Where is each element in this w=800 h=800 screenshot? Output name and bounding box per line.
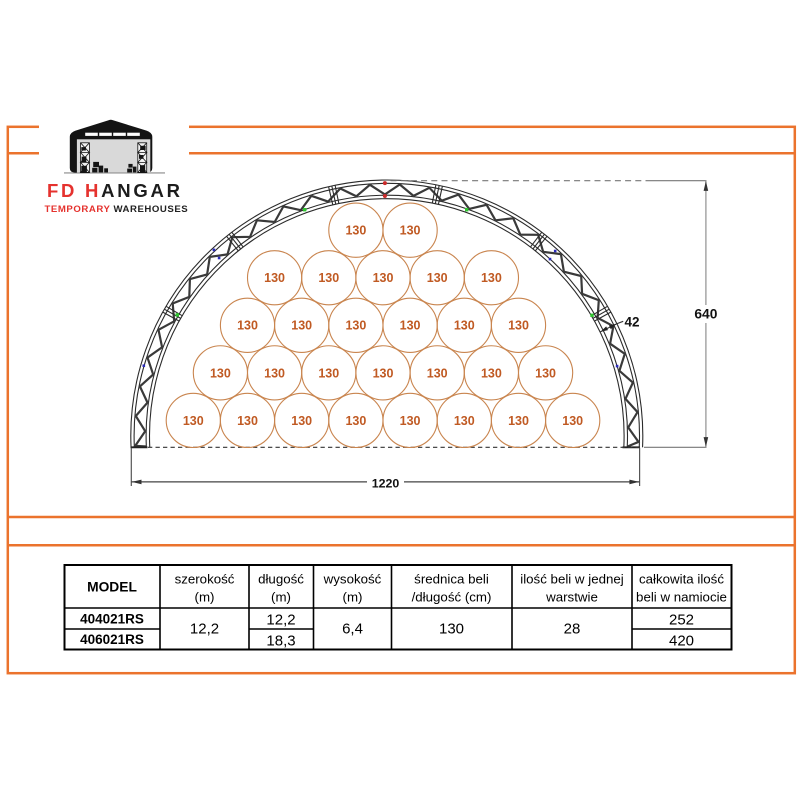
svg-text:420: 420 [669, 633, 694, 650]
svg-text:średnica beli: średnica beli [414, 572, 489, 587]
svg-text:szerokość: szerokość [175, 572, 235, 587]
svg-text:130: 130 [400, 224, 421, 238]
svg-text:ilość beli w jednej: ilość beli w jednej [520, 572, 624, 587]
svg-text:TEMPORARY WAREHOUSES: TEMPORARY WAREHOUSES [45, 204, 189, 215]
svg-text:130: 130 [427, 366, 448, 380]
svg-text:beli w namiocie: beli w namiocie [636, 590, 727, 605]
svg-text:28: 28 [564, 621, 581, 638]
svg-text:130: 130 [373, 271, 394, 285]
svg-text:130: 130 [345, 319, 366, 333]
svg-text:130: 130 [439, 621, 464, 638]
svg-text:(m): (m) [195, 590, 215, 605]
svg-text:130: 130 [400, 319, 421, 333]
svg-text:130: 130 [562, 414, 583, 428]
svg-text:130: 130 [291, 319, 312, 333]
svg-text:130: 130 [508, 414, 529, 428]
svg-text:130: 130 [291, 414, 312, 428]
svg-text:130: 130 [345, 224, 366, 238]
svg-text:130: 130 [318, 366, 339, 380]
svg-text:130: 130 [183, 414, 204, 428]
svg-text:MODEL: MODEL [87, 580, 137, 595]
svg-text:18,3: 18,3 [266, 633, 295, 650]
svg-text:404021RS: 404021RS [80, 612, 144, 627]
svg-text:6,4: 6,4 [342, 621, 363, 638]
svg-text:252: 252 [669, 612, 694, 629]
svg-text:(m): (m) [343, 590, 363, 605]
svg-text:42: 42 [625, 315, 640, 330]
svg-text:130: 130 [237, 414, 258, 428]
svg-text:406021RS: 406021RS [80, 632, 144, 647]
svg-text:130: 130 [373, 366, 394, 380]
svg-text:długość: długość [258, 572, 304, 587]
svg-text:130: 130 [264, 366, 285, 380]
svg-text:12,2: 12,2 [190, 621, 219, 638]
svg-text:130: 130 [427, 271, 448, 285]
svg-text:/długość (cm): /długość (cm) [412, 590, 492, 605]
svg-text:130: 130 [481, 271, 502, 285]
svg-text:130: 130 [400, 414, 421, 428]
svg-text:1220: 1220 [372, 477, 400, 491]
svg-text:(m): (m) [271, 590, 291, 605]
svg-text:FD HANGAR: FD HANGAR [47, 180, 183, 201]
svg-text:130: 130 [237, 319, 258, 333]
svg-text:640: 640 [694, 307, 717, 322]
svg-text:130: 130 [454, 319, 475, 333]
svg-text:130: 130 [508, 319, 529, 333]
svg-text:wysokość: wysokość [323, 572, 382, 587]
svg-text:całkowita ilość: całkowita ilość [639, 572, 724, 587]
svg-text:130: 130 [264, 271, 285, 285]
svg-text:130: 130 [454, 414, 475, 428]
svg-text:12,2: 12,2 [266, 612, 295, 629]
svg-text:130: 130 [318, 271, 339, 285]
svg-text:130: 130 [481, 366, 502, 380]
svg-text:130: 130 [535, 366, 556, 380]
svg-text:warstwie: warstwie [545, 590, 598, 605]
svg-text:130: 130 [210, 366, 231, 380]
svg-text:130: 130 [345, 414, 366, 428]
